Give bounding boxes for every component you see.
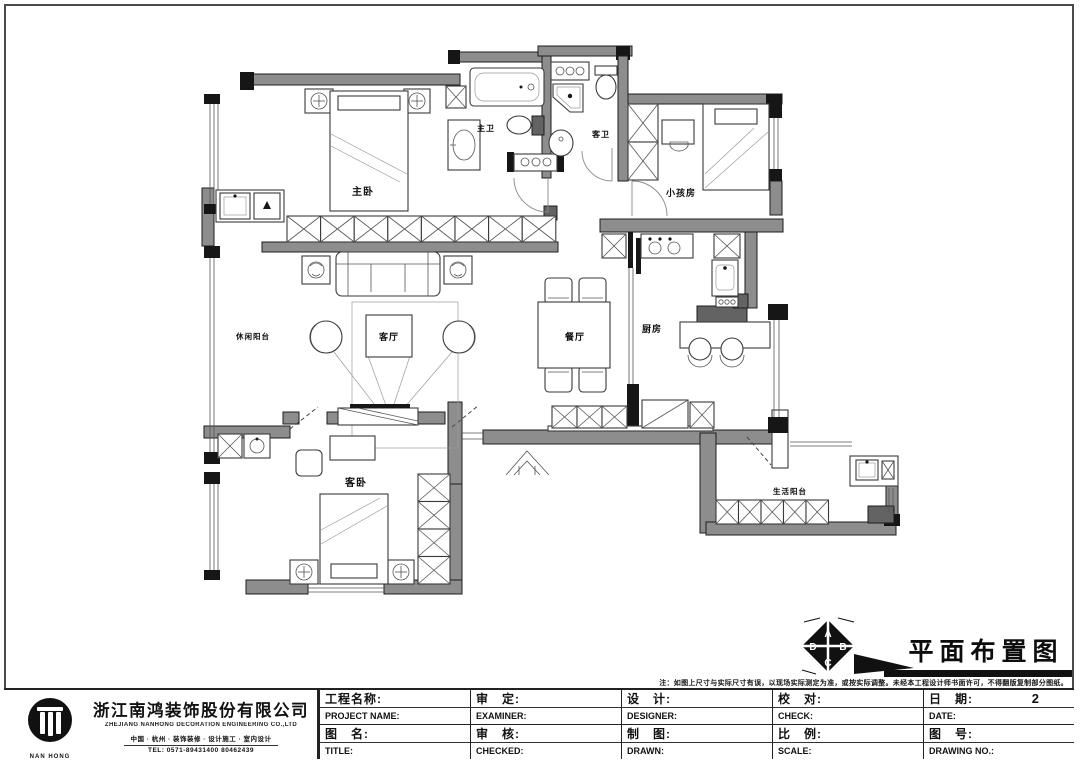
toilet — [596, 75, 616, 99]
chair — [579, 366, 606, 392]
dining-room: 餐厅 — [538, 278, 610, 392]
label-en: SCALE: — [773, 743, 923, 759]
kids-room: 小孩房 — [662, 104, 769, 198]
x-cabinet — [628, 142, 658, 180]
company-tel: TEL: 0571-89431400 80462439 — [90, 747, 312, 754]
company-tagline: 中国 · 杭州 · 装饰装修 · 设计施工 · 室内设计 — [124, 733, 277, 746]
cell-date: 日 期: 2 DATE: — [923, 690, 1074, 725]
label-en: DESIGNER: — [622, 708, 772, 723]
x-cabinet — [628, 104, 658, 142]
cell-drawn: 制 图: DRAWN: — [621, 725, 772, 760]
label-zh: 审 定: — [471, 690, 621, 708]
title-block: NAN HONG 浙江南鸿装饰股份有限公司 ZHEJIANG NANHONG D… — [4, 688, 1074, 759]
label-zh: 设 计: — [622, 690, 772, 708]
leisure-balcony: 休闲阳台 — [216, 190, 284, 458]
cooktop-counter — [641, 234, 693, 258]
desk — [330, 436, 375, 460]
label-zh: 日 期: — [929, 690, 973, 707]
floor-plan: 主卧 主卫 — [0, 6, 1080, 606]
chair — [296, 450, 322, 476]
x-cabinet — [716, 500, 739, 524]
x-cabinet — [784, 500, 807, 524]
bar-stool — [721, 338, 743, 360]
room-label-service-balcony: 生活阳台 — [773, 486, 807, 496]
x-cabinet — [418, 502, 450, 530]
room-label-guest-bath: 客卫 — [591, 129, 610, 139]
x-cabinet — [489, 216, 523, 242]
chair — [545, 278, 572, 304]
x-cabinet — [421, 216, 455, 242]
compass-logo: A B C D — [802, 618, 914, 674]
room-label-dining: 餐厅 — [564, 331, 585, 342]
title-mark: A B C D 平面布置图 — [780, 608, 1076, 686]
guest-bath: 客卫 — [549, 62, 617, 156]
x-cabinet — [882, 461, 894, 479]
wash-counter — [551, 62, 589, 80]
cell-checked: 审 核: CHECKED: — [470, 725, 621, 760]
x-cabinet — [690, 402, 714, 428]
label-en: TITLE: — [320, 743, 470, 759]
x-cabinet — [522, 216, 556, 242]
label-en: DATE: — [924, 708, 1074, 723]
room-label-master-bath: 主卫 — [477, 123, 495, 133]
side-table — [444, 256, 472, 284]
chair — [545, 366, 572, 392]
compass-letter-d: D — [809, 642, 816, 653]
toilet — [507, 116, 531, 134]
label-en: CHECK: — [773, 708, 923, 723]
room-label-living: 客厅 — [378, 331, 399, 342]
tv — [350, 404, 410, 408]
x-cabinet — [354, 216, 388, 242]
toilet-tank — [532, 116, 544, 135]
label-zh: 图 名: — [320, 725, 470, 744]
title-block-table: 工程名称: PROJECT NAME: 审 定: EXAMINER: 设 计: … — [319, 690, 1074, 759]
label-zh: 工程名称: — [320, 690, 470, 708]
company-name-en: ZHEJIANG NANHONG DECORATION ENGINEERING … — [90, 722, 312, 728]
room-label-guest-bedroom: 客卧 — [344, 476, 367, 489]
bar-appliance — [716, 297, 738, 307]
round-basin — [549, 130, 573, 156]
x-cabinet — [739, 500, 762, 524]
date-value: 2 — [1032, 691, 1040, 706]
x-cabinet — [577, 406, 602, 428]
label-zh: 校 对: — [773, 690, 923, 708]
cell-drawing-no: 图 号: DRAWING NO.: — [923, 725, 1074, 760]
side-table — [302, 256, 330, 284]
label-zh: 审 核: — [471, 725, 621, 744]
cell-examiner: 审 定: EXAMINER: — [470, 690, 621, 725]
revision-note: 注：如图上尺寸与实际尺寸有误，以现场实际测定为准，或按实际调整。未经本工程设计师… — [659, 678, 1068, 688]
title-underline — [884, 670, 1072, 677]
guest-bedroom: 客卧 — [290, 436, 414, 584]
compass-letter-c: C — [824, 658, 831, 669]
company-logo: NAN HONG — [24, 696, 76, 760]
room-label-kitchen: 厨房 — [642, 323, 662, 334]
cell-check: 校 对: CHECK: — [772, 690, 923, 725]
pillow — [715, 109, 757, 124]
label-en: DRAWING NO.: — [924, 743, 1074, 759]
label-en: EXAMINER: — [471, 708, 621, 723]
toilet-tank — [595, 66, 617, 75]
headboard — [338, 96, 400, 110]
cell-title: 图 名: TITLE: — [319, 725, 470, 760]
x-cabinet — [321, 216, 355, 242]
compass-letter-a: A — [824, 629, 831, 640]
desk — [662, 120, 694, 144]
room-label-master-bedroom: 主卧 — [352, 185, 374, 198]
x-cabinet — [552, 406, 577, 428]
label-zh: 图 号: — [924, 725, 1074, 744]
x-cabinet — [761, 500, 784, 524]
sofa — [336, 252, 440, 296]
label-zh: 制 图: — [622, 725, 772, 744]
entry-arrow — [506, 451, 549, 475]
x-cabinet — [806, 500, 829, 524]
chair — [579, 278, 606, 304]
x-cabinet — [602, 234, 626, 258]
logo-caption: NAN HONG — [24, 754, 76, 760]
label-en: PROJECT NAME: — [320, 708, 470, 723]
room-label-kids-room: 小孩房 — [665, 187, 696, 198]
label-en: DRAWN: — [622, 743, 772, 759]
master-bedroom: 主卧 — [305, 89, 430, 211]
nanhong-logo-icon — [24, 696, 76, 748]
x-cabinet — [218, 434, 242, 458]
company-name: 浙江南鸿装饰股份有限公司 — [90, 697, 312, 721]
x-cabinet — [287, 216, 321, 242]
x-cabinet — [418, 557, 450, 585]
x-cabinet — [455, 216, 489, 242]
company-panel: NAN HONG 浙江南鸿装饰股份有限公司 ZHEJIANG NANHONG D… — [4, 690, 319, 759]
x-cabinet — [418, 474, 450, 502]
service-balcony: 生活阳台 — [773, 456, 898, 496]
x-cabinet — [602, 406, 627, 428]
cell-project-name: 工程名称: PROJECT NAME: — [319, 690, 470, 725]
x-cabinet — [714, 234, 740, 258]
x-cabinet — [388, 216, 422, 242]
label-zh: 比 例: — [773, 725, 923, 744]
room-label-leisure-balcony: 休闲阳台 — [235, 331, 270, 341]
drawing-title: 平面布置图 — [908, 637, 1063, 666]
cell-scale: 比 例: SCALE: — [772, 725, 923, 760]
drawing-sheet: 主卧 主卫 — [0, 0, 1080, 764]
compass-letter-b: B — [839, 642, 846, 653]
x-cabinet — [418, 529, 450, 557]
pillow — [331, 564, 377, 578]
x-cabinet — [446, 86, 466, 108]
label-en: CHECKED: — [471, 743, 621, 759]
bar-stool — [689, 338, 711, 360]
cell-designer: 设 计: DESIGNER: — [621, 690, 772, 725]
